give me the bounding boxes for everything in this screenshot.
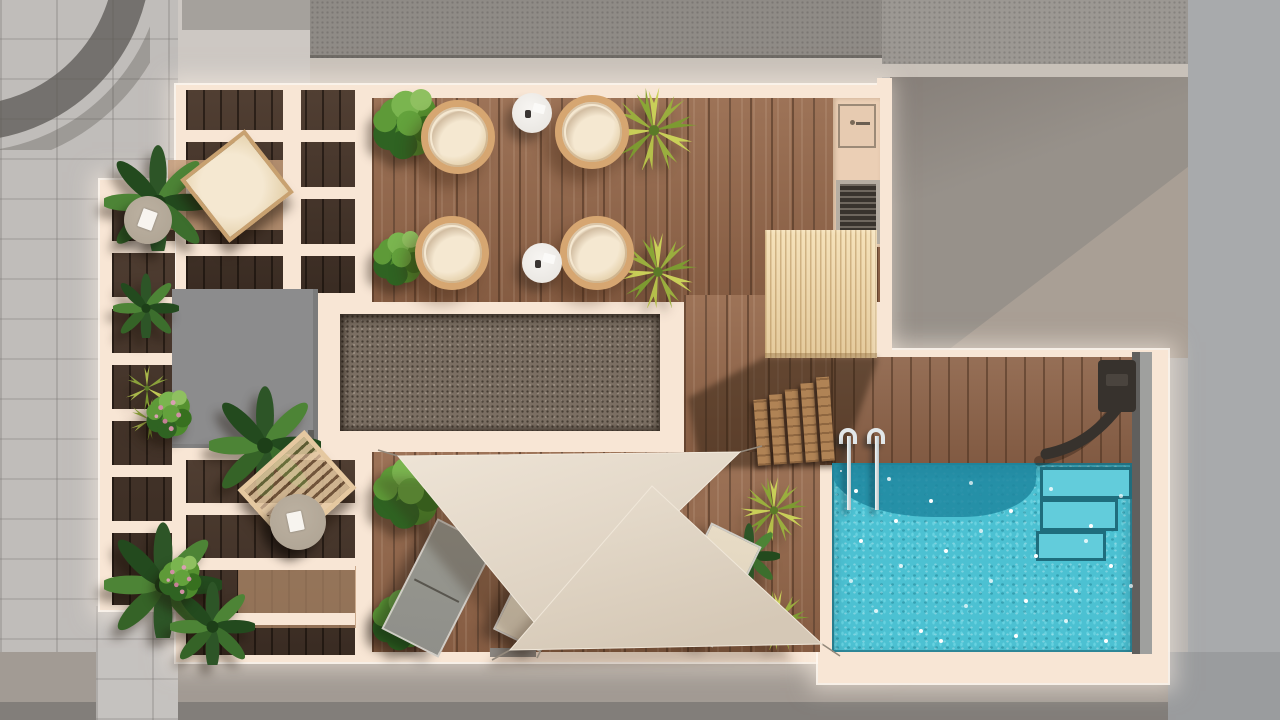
rattan-chair [421,100,495,174]
flowering-plant [148,550,214,608]
rooftop-terrace-render [0,0,1280,720]
stair-tread [785,389,803,464]
sink-drain [850,120,855,125]
deck-door-mat [490,648,536,657]
rattan-chair [560,216,634,290]
pool-ladder-rail-right [875,436,879,510]
stair-tread [816,377,835,462]
stair-tread [769,394,787,465]
pool-sparkles [840,470,842,472]
lounger-fold-seam [691,575,731,596]
pool-entry-step-1 [1040,467,1132,499]
pool-entry-step-3 [1036,531,1106,561]
timber-stairs [752,374,850,468]
rattan-chair [415,216,489,290]
lounger-fold-seam [522,581,559,600]
rattan-chair [555,95,629,169]
white-side-table [512,93,552,133]
pool-entry-step-2 [1040,499,1118,531]
tropical-plant [110,272,182,338]
stair-tread [800,383,818,463]
timber-cabin [765,230,877,358]
sink-faucet [856,122,870,125]
white-side-table [522,243,562,283]
pool-ladder-rail-left [847,436,851,510]
kitchen-sink [838,104,876,148]
lounger-fold-seam [414,579,460,604]
